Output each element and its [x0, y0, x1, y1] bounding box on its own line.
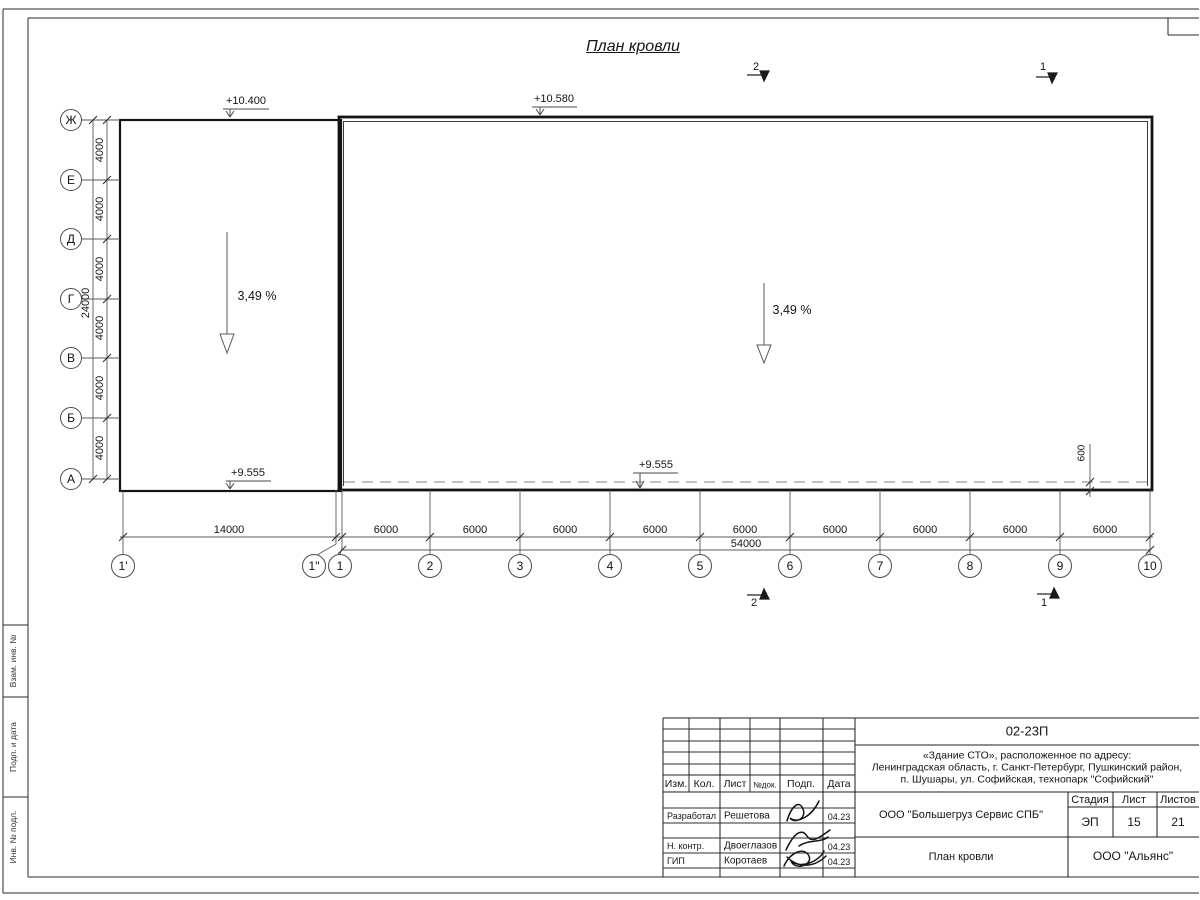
letter-axis-ticks	[89, 116, 111, 483]
section-mark-top-2: 2	[753, 61, 759, 73]
frame-strip-cell-2: Подп. и дата	[8, 722, 18, 772]
dim-v-bay-5: 4000	[94, 376, 106, 400]
stage-value: ЭП	[1081, 815, 1098, 829]
number-axes	[120, 490, 1153, 555]
axis-bubble-10: 10	[1138, 554, 1162, 578]
axis-bubble-1p: 1'	[111, 554, 135, 578]
slope-label-left: 3,49 %	[238, 289, 277, 303]
sign-row-date: 04.23	[828, 842, 851, 852]
axis-bubble-letter-2: Е	[60, 169, 82, 191]
stage-label: Стадия	[1071, 794, 1109, 806]
sign-row-date: 04.23	[828, 812, 851, 822]
axis-bubble-letter-4: Г	[60, 288, 82, 310]
rev-header-kol: Кол.	[694, 778, 715, 790]
sheets-label: Листов	[1160, 794, 1196, 806]
company-name: ООО "Альянс"	[1093, 849, 1173, 863]
axis-bubble-7: 7	[868, 554, 892, 578]
dim-h-total: 54000	[731, 538, 762, 550]
rev-header-izm: Изм.	[665, 778, 688, 790]
dim-h-bay-1: 6000	[374, 524, 398, 536]
dim-h-bay-8: 6000	[1003, 524, 1027, 536]
elevation-right-top: +10.580	[534, 93, 574, 105]
sign-row-role: ГИП	[667, 856, 685, 866]
section-mark-bottom-2: 2	[751, 597, 757, 609]
axis-bubble-letter-5: В	[60, 347, 82, 369]
axis-bubble-4: 4	[598, 554, 622, 578]
dim-h-bay-6: 6000	[823, 524, 847, 536]
number-axis-ticks	[119, 533, 1154, 554]
dim-v-bay-1: 4000	[94, 138, 106, 162]
frame-strip-cell-1: Взам. инв. №	[8, 635, 18, 688]
axis-bubble-letter-1: Ж	[60, 109, 82, 131]
dim-v-total: 24000	[80, 288, 92, 319]
drawing-view-title: План кровли	[586, 38, 680, 56]
sheet-label: Лист	[1122, 794, 1146, 806]
dim-h-bay-9: 6000	[1093, 524, 1117, 536]
dim-v-bay-4: 4000	[94, 316, 106, 340]
axis-bubble-8: 8	[958, 554, 982, 578]
drawing-sheet: План кровли +10.400 +10.580 +9.555 +9.55…	[0, 0, 1200, 900]
dim-h-bay-4: 6000	[643, 524, 667, 536]
axis-bubble-6: 6	[778, 554, 802, 578]
rev-header-ndok: №док.	[753, 781, 776, 790]
sign-row-name: Решетова	[724, 811, 770, 822]
elevation-left-bottom: +9.555	[231, 467, 265, 479]
client-name: ООО "Большегруз Сервис СПБ"	[879, 809, 1043, 821]
dim-h-bay-5: 6000	[733, 524, 757, 536]
sign-row-role: Разработал	[667, 811, 716, 821]
section-mark-top-1: 1	[1040, 61, 1046, 73]
axis-bubble-9: 9	[1048, 554, 1072, 578]
rev-header-data: Дата	[827, 778, 850, 790]
project-address: «Здание СТО», расположенное по адресу: Л…	[872, 750, 1182, 785]
project-address-line-3: п. Шушары, ул. Софийская, технопарк "Соф…	[872, 774, 1182, 786]
section-mark-bottom-1: 1	[1041, 597, 1047, 609]
axis-bubble-1: 1	[328, 554, 352, 578]
frame-strip-cell-3: Инв. № подл.	[8, 811, 18, 864]
slope-arrows	[220, 232, 771, 363]
slope-label-right: 3,49 %	[773, 303, 812, 317]
axis-bubble-3: 3	[508, 554, 532, 578]
dim-h-first: 14000	[214, 524, 245, 536]
dim-v-bay-6: 4000	[94, 436, 106, 460]
sign-row-name: Двоеглазов	[724, 841, 777, 852]
project-address-line-2: Ленинградская область, г. Санкт-Петербур…	[872, 762, 1182, 774]
sign-row-name: Коротаев	[724, 856, 767, 867]
axis-bubble-letter-6: Б	[60, 407, 82, 429]
dim-edge-offset: 600	[1077, 445, 1088, 462]
sign-row-role: Н. контр.	[667, 841, 704, 851]
axis-bubble-1pp: 1"	[302, 554, 326, 578]
building-outline	[120, 117, 1152, 491]
dim-v-bay-3: 4000	[94, 257, 106, 281]
elevation-leaders	[223, 107, 678, 489]
doc-number: 02-23П	[1006, 724, 1049, 739]
section-marks	[747, 71, 1059, 599]
axis-bubble-letter-7: А	[60, 468, 82, 490]
dim-h-bay-2: 6000	[463, 524, 487, 536]
axis-bubble-5: 5	[688, 554, 712, 578]
sheet-value: 15	[1127, 815, 1140, 829]
sheet-name: План кровли	[929, 851, 994, 863]
dim-v-bay-2: 4000	[94, 197, 106, 221]
sign-row-date: 04.23	[828, 857, 851, 867]
elevation-left-top: +10.400	[226, 95, 266, 107]
rev-header-podp: Подп.	[787, 778, 815, 790]
dim-h-bay-7: 6000	[913, 524, 937, 536]
axis-bubble-2: 2	[418, 554, 442, 578]
elevation-mid-bottom: +9.555	[639, 459, 673, 471]
rev-header-list: Лист	[724, 778, 747, 790]
sheets-value: 21	[1171, 815, 1184, 829]
axis-bubble-letter-3: Д	[60, 228, 82, 250]
dim-h-bay-3: 6000	[553, 524, 577, 536]
